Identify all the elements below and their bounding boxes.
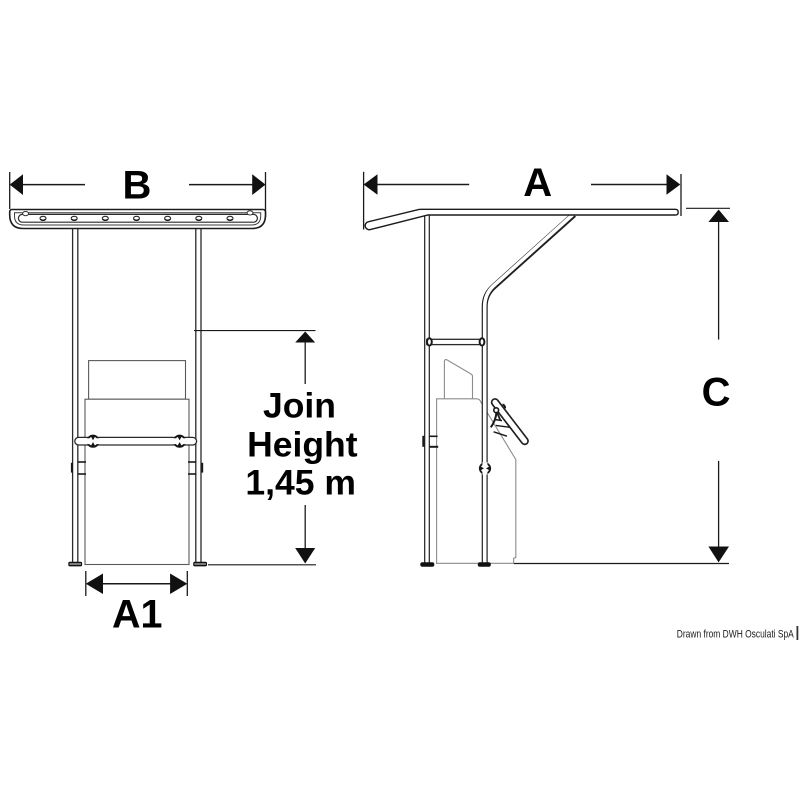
svg-text:1,45 m: 1,45 m [245, 463, 356, 503]
svg-text:B: B [123, 164, 152, 208]
svg-text:Drawn from DWH Osculati SpA: Drawn from DWH Osculati SpA [677, 629, 794, 641]
svg-text:Height: Height [247, 425, 358, 465]
svg-text:A1: A1 [112, 593, 163, 637]
svg-text:A: A [523, 161, 552, 205]
svg-text:Join: Join [263, 386, 336, 426]
svg-text:C: C [702, 371, 731, 415]
